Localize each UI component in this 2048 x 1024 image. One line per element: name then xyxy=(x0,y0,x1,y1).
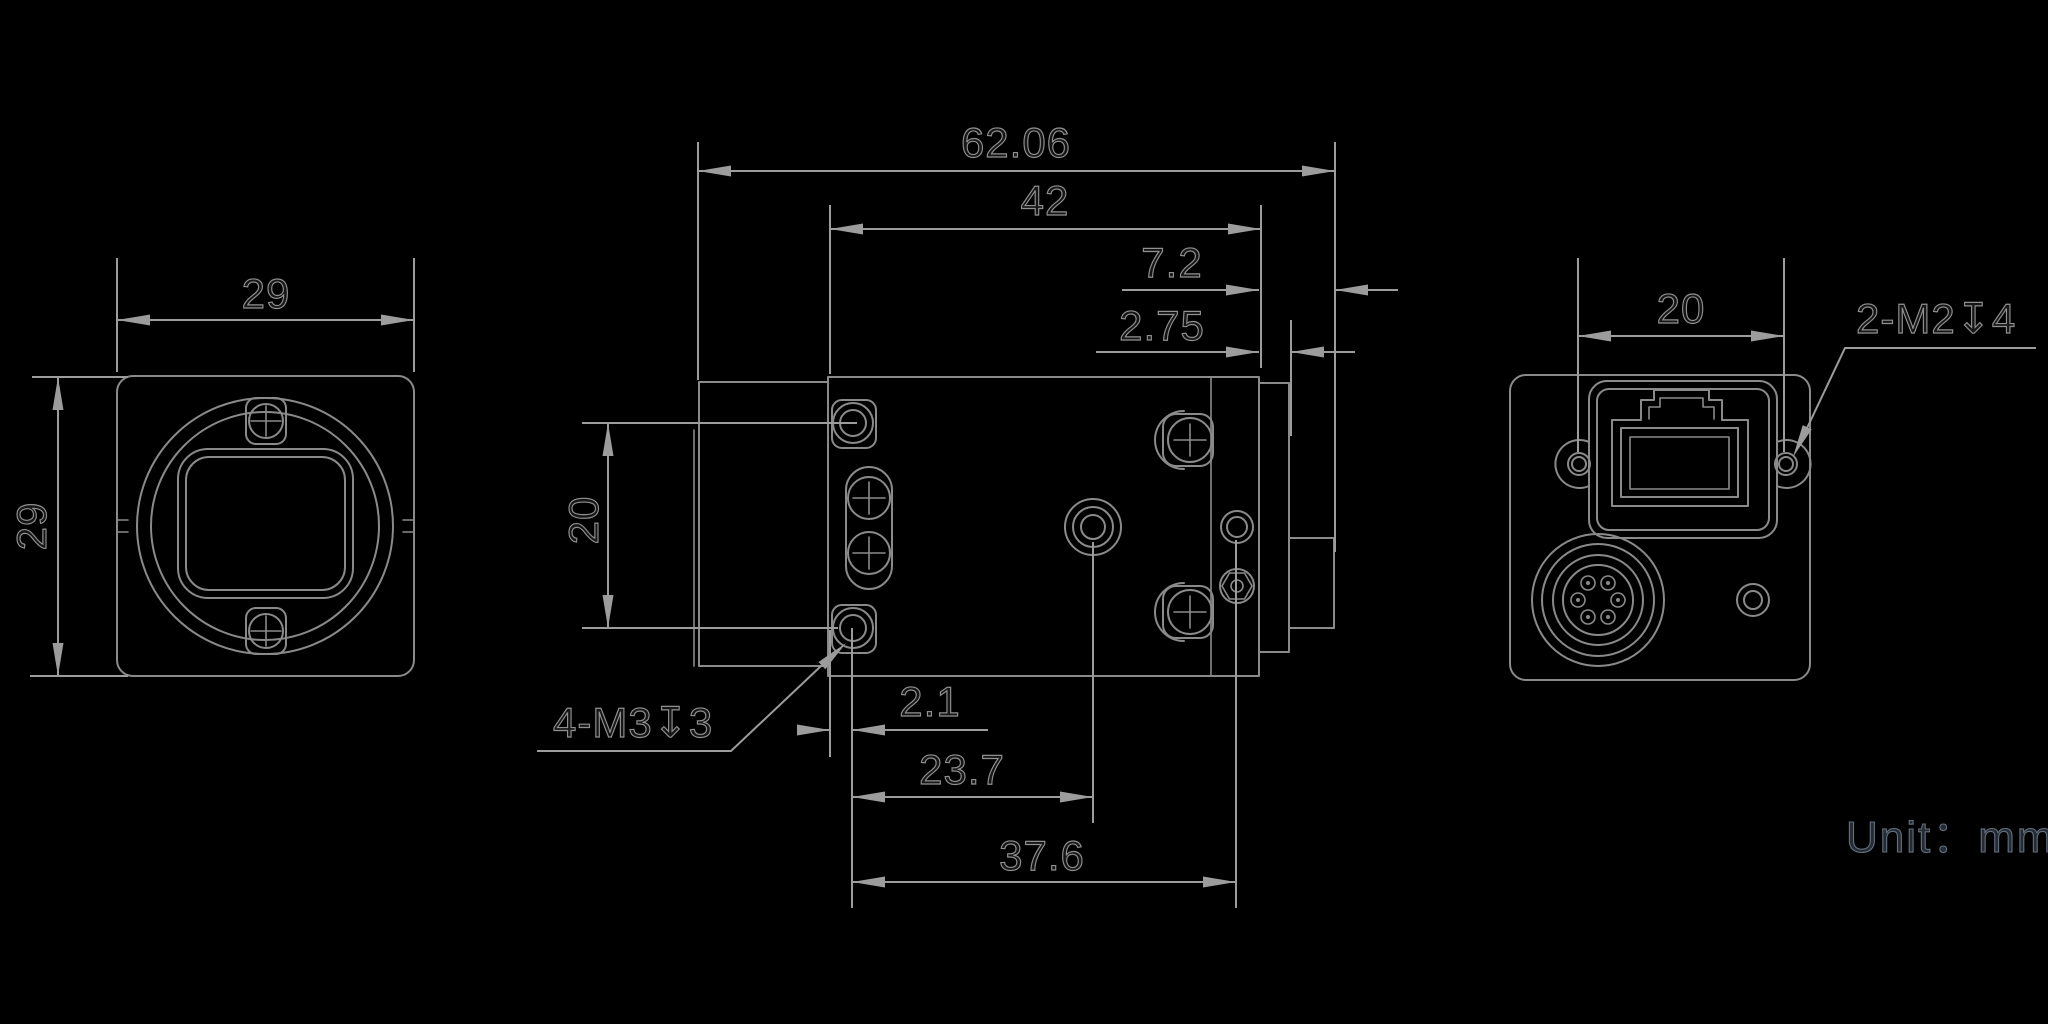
sensor-window-outer xyxy=(178,449,353,598)
m8-connector xyxy=(1532,534,1664,666)
back-small-hole xyxy=(1737,584,1769,616)
front-view xyxy=(117,376,414,676)
sensor-window-inner xyxy=(186,457,345,590)
front-hole-offset-value: 2.1 xyxy=(899,678,960,725)
front-height-value: 29 xyxy=(8,502,55,551)
arrowhead xyxy=(117,315,150,326)
arrowhead xyxy=(381,315,414,326)
back-left-screw-hole xyxy=(1568,453,1590,475)
ethernet-port xyxy=(1612,390,1748,506)
phillips-cross-icon xyxy=(853,482,885,514)
drawing-canvas: 29 29 xyxy=(0,0,2048,1024)
rear-plate-value: 2.75 xyxy=(1119,302,1205,349)
back-view xyxy=(1510,375,1811,680)
back-thread-callout: 2-M2↧4 xyxy=(1856,295,2016,342)
phillips-cross-icon xyxy=(251,616,281,646)
lens-mount-outer-ring xyxy=(137,398,393,654)
front-top-screw xyxy=(246,398,286,444)
side-top-right-screw xyxy=(1155,411,1213,469)
body-length-value: 42 xyxy=(1021,177,1070,224)
side-view xyxy=(694,377,1334,676)
side-bottom-left-mount-hole xyxy=(832,605,876,653)
lens-barrel-outline xyxy=(699,382,828,666)
front-view-dimensions: 29 29 xyxy=(8,258,414,676)
arrowhead xyxy=(53,643,64,676)
side-rear-hole xyxy=(1221,511,1253,543)
thread-callout-leader xyxy=(1799,348,2036,445)
side-thread-callout: 4-M3↧3 xyxy=(553,699,713,746)
front-bottom-screw xyxy=(246,608,286,654)
unit-note: Unit：mm xyxy=(1846,813,2048,862)
back-screw-spacing-value: 20 xyxy=(1657,285,1706,332)
rear-protrusion-value: 7.2 xyxy=(1141,239,1202,286)
rear-connector-profile xyxy=(1289,538,1334,628)
side-bottom-right-screw xyxy=(1155,583,1213,641)
side-view-dimensions: 62.06 42 7.2 2.75 20 2.1 23.7 37.6 4-M3↧… xyxy=(537,119,1398,908)
back-right-screw-hole xyxy=(1775,453,1797,475)
edge-notch-marks xyxy=(117,520,414,532)
tripod-offset-value: 23.7 xyxy=(919,746,1005,793)
back-panel-inner xyxy=(1597,389,1769,530)
rear-plate-profile xyxy=(1259,383,1289,652)
phillips-cross-icon xyxy=(1174,596,1206,628)
phillips-cross-icon xyxy=(251,406,281,436)
arrowhead xyxy=(53,377,64,410)
connector-pins xyxy=(1571,576,1625,624)
front-width-value: 29 xyxy=(242,270,291,317)
camera-dimension-drawing: 29 29 xyxy=(0,0,2048,1024)
phillips-cross-icon xyxy=(853,537,885,569)
phillips-cross-icon xyxy=(1174,424,1206,456)
total-length-value: 62.06 xyxy=(961,119,1071,166)
hole-spacing-value: 20 xyxy=(560,496,607,545)
side-screw-slot xyxy=(846,467,892,589)
rear-hole-offset-value: 37.6 xyxy=(999,832,1085,879)
